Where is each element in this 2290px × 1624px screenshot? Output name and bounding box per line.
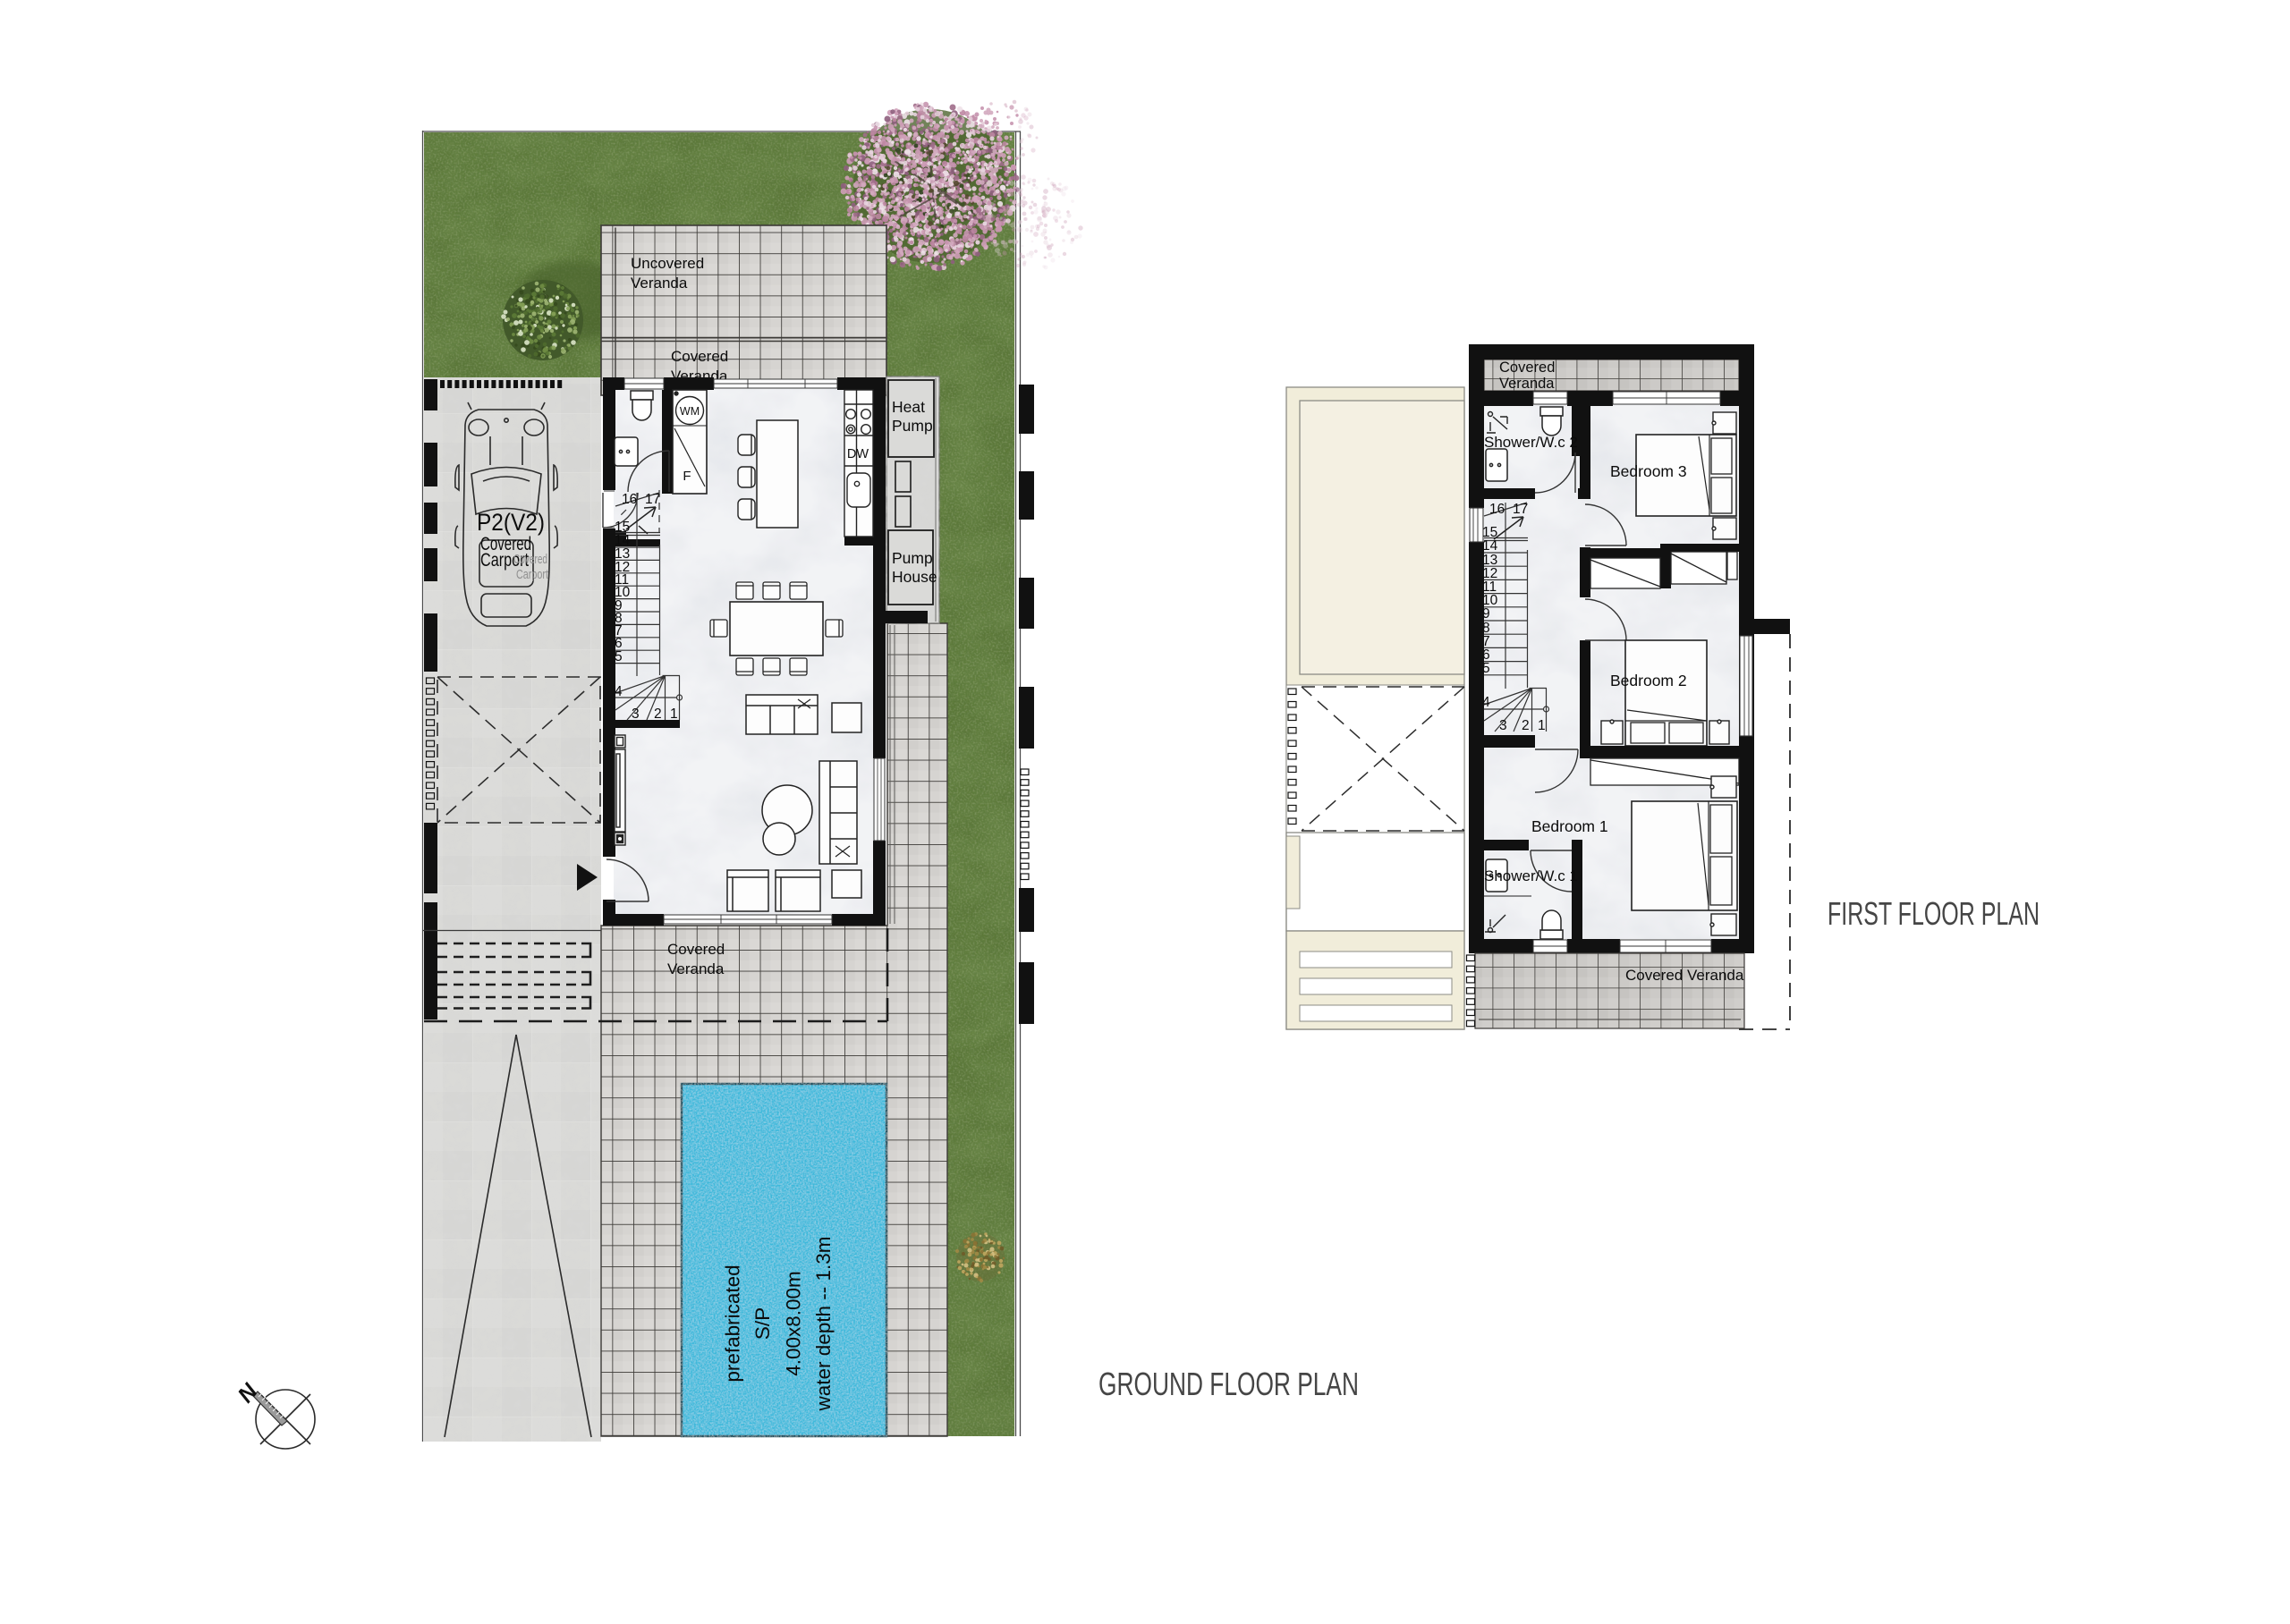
svg-text:Shower/W.c 2: Shower/W.c 2 <box>1484 434 1578 451</box>
svg-text:Shower/W.c 1: Shower/W.c 1 <box>1484 867 1578 884</box>
svg-text:1: 1 <box>1538 718 1546 733</box>
svg-text:4.00x8.00m: 4.00x8.00m <box>783 1271 805 1376</box>
svg-text:S/P: S/P <box>751 1307 774 1340</box>
svg-text:17: 17 <box>645 492 660 507</box>
svg-text:House: House <box>892 568 937 586</box>
svg-text:17: 17 <box>1513 502 1528 517</box>
svg-text:prefabricated: prefabricated <box>722 1265 744 1382</box>
svg-text:Veranda: Veranda <box>1499 376 1555 392</box>
svg-text:Veranda: Veranda <box>667 960 725 977</box>
svg-text:Carport: Carport <box>516 567 549 582</box>
svg-text:16: 16 <box>1489 502 1505 517</box>
svg-text:2: 2 <box>1522 718 1530 733</box>
svg-text:GROUND FLOOR PLAN: GROUND FLOOR PLAN <box>1098 1366 1359 1402</box>
svg-text:Covered: Covered <box>667 941 725 958</box>
svg-text:Covered Veranda: Covered Veranda <box>1625 967 1744 984</box>
svg-text:Bedroom 3: Bedroom 3 <box>1610 462 1687 480</box>
svg-text:FIRST FLOOR PLAN: FIRST FLOOR PLAN <box>1828 895 2040 932</box>
svg-text:5: 5 <box>615 649 623 664</box>
svg-text:Covered: Covered <box>1499 359 1555 376</box>
svg-text:3: 3 <box>1499 718 1507 733</box>
svg-text:5: 5 <box>1482 661 1490 676</box>
svg-text:F: F <box>683 469 691 484</box>
svg-text:DW: DW <box>847 447 869 461</box>
svg-text:Veranda: Veranda <box>631 275 688 292</box>
svg-text:Uncovered: Uncovered <box>631 255 704 272</box>
svg-text:Pump: Pump <box>892 417 933 435</box>
svg-text:Heat: Heat <box>892 398 925 416</box>
svg-text:Bedroom 1: Bedroom 1 <box>1531 817 1608 835</box>
svg-text:2: 2 <box>654 706 662 722</box>
svg-text:Covered: Covered <box>671 348 728 365</box>
svg-text:Pump: Pump <box>892 549 933 567</box>
svg-text:WM: WM <box>680 405 700 418</box>
svg-text:4: 4 <box>615 684 623 699</box>
svg-text:3: 3 <box>632 706 640 722</box>
svg-text:14: 14 <box>1482 538 1498 554</box>
svg-text:water depth -- 1.3m: water depth -- 1.3m <box>812 1236 835 1411</box>
svg-text:P2(V2): P2(V2) <box>477 509 545 536</box>
svg-text:16: 16 <box>622 492 637 507</box>
svg-text:Covered: Covered <box>513 552 547 567</box>
svg-text:Bedroom 2: Bedroom 2 <box>1610 672 1687 689</box>
svg-text:4: 4 <box>1482 695 1490 710</box>
svg-text:9: 9 <box>1482 606 1490 622</box>
svg-text:1: 1 <box>670 706 678 722</box>
